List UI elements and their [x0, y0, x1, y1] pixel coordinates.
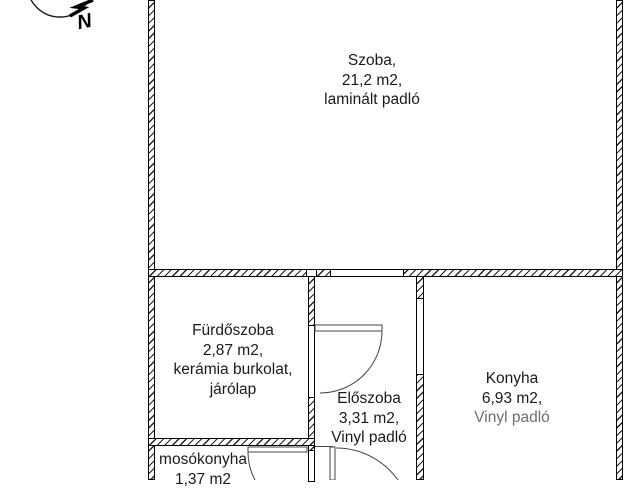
room-label-eloszoba: Előszoba 3,31 m2, Vinyl padló — [331, 389, 407, 448]
room-name: Szoba, — [324, 51, 420, 71]
room-area: 3,31 m2, — [331, 409, 407, 429]
doorway-szoba-eloszoba — [330, 269, 404, 277]
floor-plan-canvas: { "plan": { "compass": { "north_label": … — [0, 0, 640, 480]
room-floor: Vinyl padló — [474, 408, 550, 428]
room-area: 1,37 m2 — [159, 470, 247, 489]
room-area: 21,2 m2, — [324, 71, 420, 91]
room-floor: laminált padló — [324, 90, 420, 110]
compass: N — [27, 0, 94, 34]
door-leaf-eloszoba — [330, 447, 335, 480]
room-area: 2,87 m2, — [174, 341, 293, 361]
room-name: Előszoba — [331, 389, 407, 409]
room-name: mosókonyha — [159, 450, 247, 470]
compass-north-label: N — [75, 10, 94, 35]
room-floor: kerámia burkolat, — [174, 360, 293, 380]
room-floor: járólap — [174, 380, 293, 400]
wall-outer-right — [616, 0, 623, 480]
wall-junction-gap — [306, 269, 317, 277]
door-arc-furdoszoba — [320, 331, 382, 393]
door-furdoszoba — [315, 325, 382, 393]
room-label-szoba: Szoba, 21,2 m2, laminált padló — [324, 51, 420, 110]
room-name: Konyha — [474, 369, 550, 389]
door-arc-eloszoba — [336, 448, 398, 480]
door-eloszoba-bottom — [315, 447, 398, 481]
doorway-mosokonyha — [308, 450, 315, 482]
compass-circle-icon — [27, 0, 93, 17]
north-needle-icon — [70, 0, 93, 16]
door-arc-mosokonyha — [248, 452, 255, 480]
room-label-mosokonyha: mosókonyha 1,37 m2 — [159, 450, 247, 489]
door-mosokonyha — [248, 447, 307, 480]
room-label-konyha: Konyha 6,93 m2, Vinyl padló — [474, 369, 550, 428]
doorway-konyha — [416, 298, 424, 375]
wall-bathroom-bottom — [148, 438, 315, 446]
doorway-furdoszoba — [308, 325, 315, 398]
door-leaf-mosokonyha — [248, 447, 307, 452]
room-name: Fürdőszoba — [174, 321, 293, 341]
door-leaf-furdoszoba — [315, 325, 382, 331]
room-area: 6,93 m2, — [474, 389, 550, 409]
room-floor: Vinyl padló — [331, 428, 407, 448]
wall-outer-left — [148, 0, 155, 480]
room-label-furdoszoba: Fürdőszoba 2,87 m2, kerámia burkolat, já… — [174, 321, 293, 399]
